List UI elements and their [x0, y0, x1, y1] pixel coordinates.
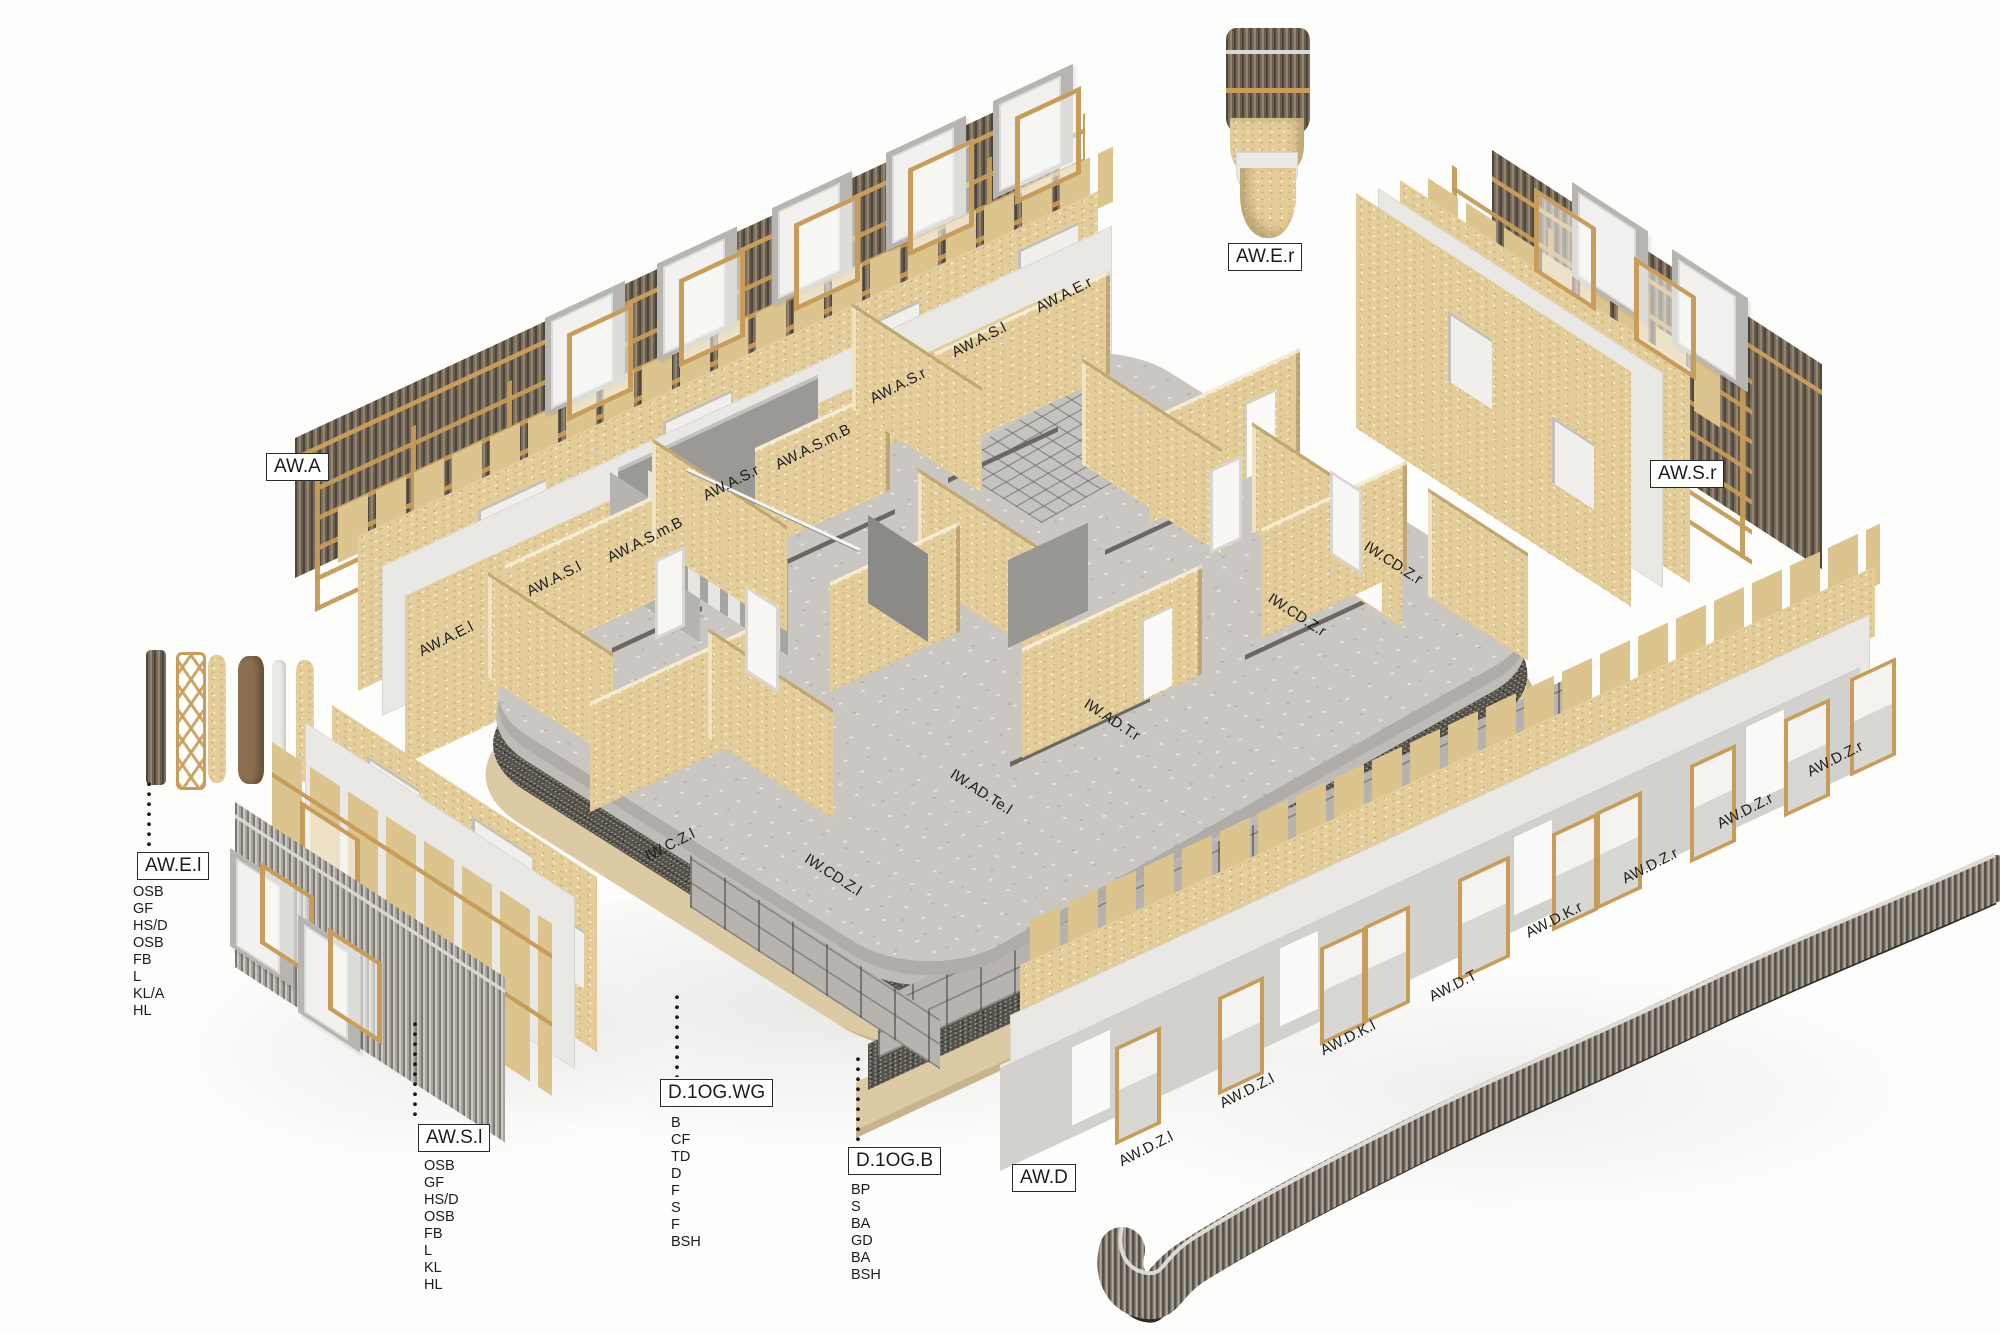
material-item: BSH — [671, 1234, 701, 1251]
material-item: OSB — [424, 1209, 459, 1226]
leader-line — [413, 1022, 417, 1120]
material-item: S — [671, 1200, 701, 1217]
material-item: F — [671, 1217, 701, 1234]
material-item: BSH — [851, 1267, 881, 1284]
material-item: FB — [133, 952, 168, 969]
label-aw-s-l: AW.S.l — [418, 1124, 490, 1152]
curved-piece-insulation — [238, 656, 264, 784]
material-item: BA — [851, 1250, 881, 1267]
material-item: KL/A — [133, 986, 168, 1003]
timber-rail — [1226, 88, 1310, 93]
material-item: HS/D — [424, 1192, 459, 1209]
material-item: L — [133, 969, 168, 986]
material-item: OSB — [133, 935, 168, 952]
material-item: D — [671, 1166, 701, 1183]
label-d-1og-wg: D.1OG.WG — [660, 1079, 773, 1107]
material-list-aw-s-l: OSB GF HS/D OSB FB L KL HL — [424, 1158, 459, 1294]
material-item: L — [424, 1243, 459, 1260]
interior-door — [655, 546, 685, 640]
material-item: F — [671, 1183, 701, 1200]
label-aw-s-r: AW.S.r — [1650, 460, 1724, 488]
material-item: OSB — [133, 884, 168, 901]
leader-line — [147, 782, 151, 848]
material-list-d-1og-wg: B CF TD D F S F BSH — [671, 1115, 701, 1251]
material-item: KL — [424, 1260, 459, 1277]
material-item: CF — [671, 1132, 701, 1149]
window-opening — [1448, 311, 1492, 410]
label-aw-e-l: AW.E.l — [137, 852, 209, 880]
interior-door — [1210, 455, 1242, 554]
material-item: HL — [424, 1277, 459, 1294]
material-item: GF — [133, 901, 168, 918]
material-item: S — [851, 1199, 881, 1216]
diagram-canvas: AW.A AW.E.r AW.S.r AW.E.l AW.S.l D.1OG.W… — [0, 0, 2000, 1333]
label-aw-a: AW.A — [266, 453, 329, 481]
balcony-railing — [850, 830, 2000, 1333]
label-d-1og-b: D.1OG.B — [848, 1147, 941, 1175]
door-opening — [1142, 606, 1172, 700]
label-aw-d: AW.D — [1012, 1164, 1076, 1192]
curved-piece-lattice — [176, 652, 206, 790]
leader-line — [675, 995, 679, 1077]
material-item: OSB — [424, 1158, 459, 1175]
material-item: HS/D — [133, 918, 168, 935]
door-frame-timber — [1850, 657, 1896, 776]
material-item: BP — [851, 1182, 881, 1199]
material-item: GD — [851, 1233, 881, 1250]
window-opening — [1552, 416, 1594, 509]
railing-rail — [1226, 50, 1310, 54]
material-item: TD — [671, 1149, 701, 1166]
material-item: BA — [851, 1216, 881, 1233]
curved-piece-slats — [146, 650, 166, 785]
curved-osb-panel — [1240, 168, 1296, 238]
material-item: FB — [424, 1226, 459, 1243]
material-item: B — [671, 1115, 701, 1132]
material-list-d-1og-b: BP S BA GD BA BSH — [851, 1182, 881, 1284]
material-item: GF — [424, 1175, 459, 1192]
label-aw-e-r: AW.E.r — [1228, 243, 1302, 271]
material-list-aw-e-l: OSB GF HS/D OSB FB L KL/A HL — [133, 884, 168, 1020]
material-item: HL — [133, 1003, 168, 1020]
leader-line — [856, 1057, 860, 1143]
curved-piece-osb — [208, 655, 226, 783]
